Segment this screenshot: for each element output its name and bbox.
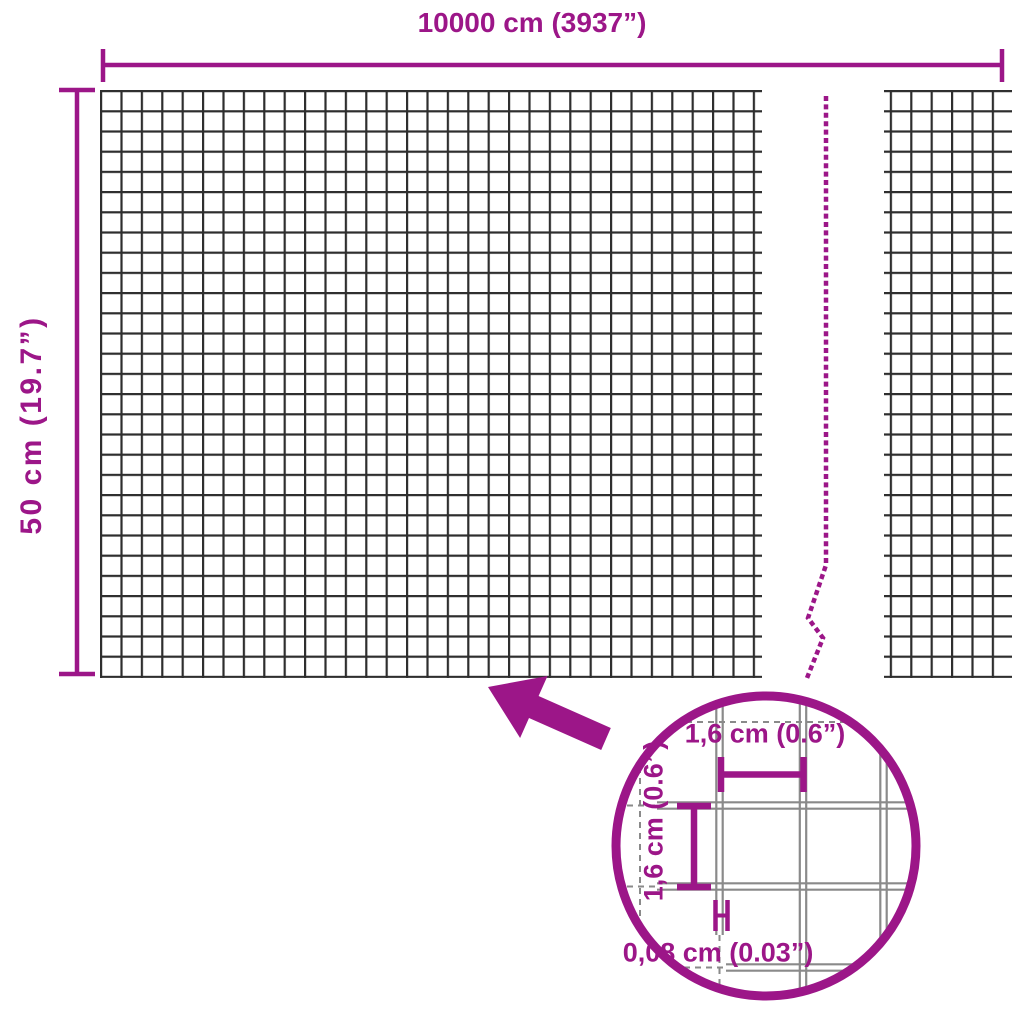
cell-width-dimension-marker	[721, 757, 804, 792]
wire-thickness-label: 0,08 cm (0.03”)	[623, 940, 814, 967]
mesh-panel-right	[884, 90, 1012, 678]
mesh-panel-left	[100, 90, 762, 678]
width-dimension-label: 10000 cm (3937”)	[418, 9, 647, 37]
height-dimension-line	[59, 90, 95, 674]
product-dimension-diagram: 10000 cm (3937”) 50 cm (19.7”) 1,6 cm (0…	[0, 0, 1024, 1024]
magnifier-arrow-icon	[488, 676, 611, 750]
break-line	[807, 96, 826, 678]
width-dimension-line	[103, 49, 1002, 82]
cell-width-label: 1,6 cm (0.6”)	[685, 721, 846, 748]
diagram-graphics	[0, 0, 1024, 1024]
cell-height-dimension-marker	[677, 806, 711, 887]
wire-thickness-marker	[716, 900, 728, 931]
cell-height-label: 1,6 cm (0.6”)	[641, 741, 668, 902]
height-dimension-label: 50 cm (19.7”)	[17, 315, 47, 534]
